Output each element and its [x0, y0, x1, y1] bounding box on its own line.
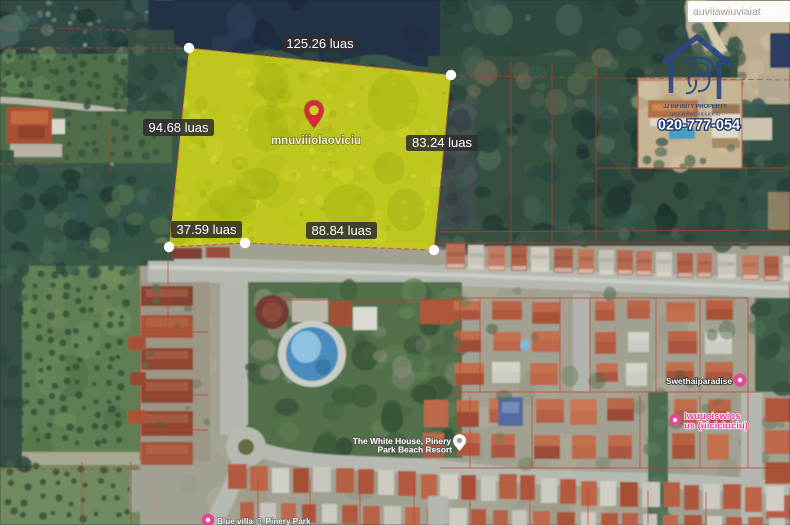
- svg-text:Blue villa @ Pinery Park: Blue villa @ Pinery Park: [217, 517, 311, 525]
- svg-text:JJ INFINITY PROPERTY: JJ INFINITY PROPERTY: [663, 104, 727, 110]
- svg-text:83.24 luas: 83.24 luas: [412, 135, 472, 150]
- svg-text:Swethaiparadise: Swethaiparadise: [666, 376, 732, 386]
- svg-text:020-777-054: 020-777-054: [658, 118, 740, 134]
- svg-text:37.59 luas: 37.59 luas: [177, 222, 237, 237]
- svg-text:88.84 luas: 88.84 luas: [312, 223, 372, 238]
- svg-text:us (uiciciuciu): us (uiciciuciu): [684, 421, 748, 432]
- svg-text:125.26 luas: 125.26 luas: [286, 36, 354, 51]
- svg-text:94.68 luas: 94.68 luas: [149, 120, 209, 135]
- svg-text:Park Beach Resort: Park Beach Resort: [378, 445, 453, 455]
- svg-text:mnuviiiolaoviciu: mnuviiiolaoviciu: [271, 135, 361, 147]
- svg-text:auviiawiuviaiat: auviiawiuviaiat: [693, 6, 761, 18]
